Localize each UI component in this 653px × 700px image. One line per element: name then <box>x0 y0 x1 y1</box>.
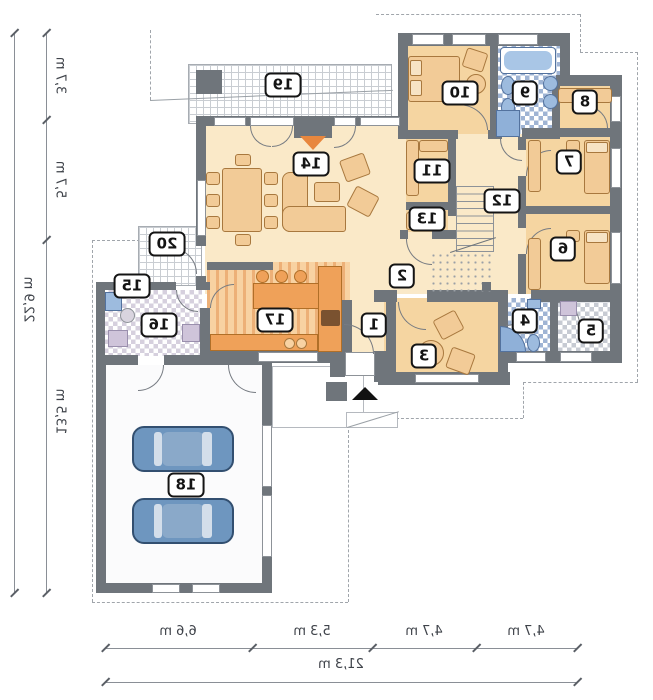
car-windshield <box>202 504 212 538</box>
dash-left-stub <box>92 240 140 241</box>
room-label-14: 14 <box>293 152 330 177</box>
room-label-15: 15 <box>114 274 151 299</box>
chair <box>235 154 251 166</box>
room-label-20: 20 <box>149 232 186 257</box>
wall-76-divider <box>526 206 612 214</box>
sink <box>543 76 558 91</box>
window-kitchen <box>258 352 318 362</box>
wall-45-divider <box>550 298 558 351</box>
room-label-9: 9 <box>512 81 538 106</box>
car-windshield <box>202 432 212 466</box>
chair <box>206 194 220 207</box>
window-garage-1 <box>152 584 180 593</box>
chair <box>264 172 278 185</box>
dim-bottom-total-line <box>105 682 577 683</box>
dash-topright-h <box>580 52 638 53</box>
wardrobe <box>528 238 541 290</box>
wall-block-right-a <box>200 282 210 290</box>
window-room5 <box>560 352 592 362</box>
dim-label-left-total: 22,9 m <box>21 272 36 328</box>
wall-garage-bottom <box>96 583 272 593</box>
window-bath9 <box>498 34 538 45</box>
window-bed10-2 <box>452 34 486 45</box>
dim-label-bottom-0: 6,6 m <box>150 624 206 639</box>
window-living-2 <box>360 117 400 126</box>
cabinet <box>108 330 128 347</box>
chair <box>264 194 278 207</box>
living-door-gap <box>334 117 356 126</box>
garage-door-2 <box>262 495 272 557</box>
dash-driveway-v <box>348 430 349 602</box>
wall-garage-left <box>96 365 106 593</box>
room-label-10: 10 <box>442 81 479 106</box>
wall-block-left <box>96 282 105 364</box>
car <box>132 426 234 472</box>
pillow <box>586 232 608 243</box>
bar-stool <box>275 270 288 283</box>
kitchen-sink <box>284 338 295 349</box>
room-label-12: 12 <box>484 189 521 214</box>
terrace-pillar <box>196 70 222 94</box>
room-label-6: 6 <box>550 237 576 262</box>
dash-terrace-v <box>150 30 151 100</box>
window-room7 <box>611 148 621 188</box>
dash-left-v <box>92 240 93 602</box>
chair <box>235 234 251 246</box>
dim-label-left-0: 3,7 m <box>53 48 68 104</box>
wall-8-top <box>556 75 616 86</box>
room-label-18: 18 <box>168 473 205 498</box>
window-office <box>415 374 479 383</box>
coffee-table <box>314 182 340 202</box>
dim-label-bottom-2: 4,7 m <box>396 624 452 639</box>
room-label-8: 8 <box>572 90 598 115</box>
dim-label-bottom-1: 5,3 m <box>284 624 340 639</box>
fireplace-body <box>294 116 332 138</box>
window-garage-2 <box>192 584 220 593</box>
terrace-door-gap <box>250 117 294 126</box>
dim-label-left-2: 13,5 m <box>53 384 68 440</box>
kitchen-counter-right <box>318 266 342 352</box>
room-label-1: 1 <box>361 313 387 338</box>
wall-13-bottom-a <box>400 230 408 239</box>
room-label-3: 3 <box>411 344 437 369</box>
dim-label-bottom-3: 4,7 m <box>498 624 554 639</box>
car-rear-window <box>154 432 162 466</box>
kitchen-island <box>253 283 321 309</box>
dim-label-bottom-total: 21,3 m <box>313 657 369 672</box>
room-label-17: 17 <box>257 308 294 333</box>
room-label-19: 19 <box>265 73 302 98</box>
window-living-left <box>197 180 206 236</box>
floor-plan: 1 2 3 4 5 6 7 8 9 10 11 12 13 14 15 16 1… <box>0 0 653 700</box>
dim-left-total-line <box>14 33 15 593</box>
dim-bottom-seg-line <box>105 648 577 649</box>
shower <box>496 110 520 137</box>
wall-7-top <box>522 128 612 137</box>
room-label-4: 4 <box>512 309 538 334</box>
window-room6 <box>611 232 621 284</box>
room-label-13: 13 <box>409 207 446 232</box>
window-bed10-1 <box>412 34 444 45</box>
room-label-11: 11 <box>414 159 451 184</box>
sink <box>543 94 558 109</box>
cabinet <box>182 324 200 342</box>
dim-label-left-1: 5,7 m <box>53 152 68 208</box>
kitchen-sink <box>296 338 307 349</box>
entry-door-gap <box>345 352 375 376</box>
toilet <box>527 334 540 352</box>
wall-vest-corner <box>374 351 396 382</box>
chair <box>206 216 220 229</box>
window-bath4 <box>516 352 546 362</box>
fireplace-hearth <box>300 136 326 150</box>
bathtub-inner <box>504 51 552 70</box>
porch-column <box>326 382 347 401</box>
car-roof <box>162 504 204 538</box>
pillow <box>410 60 422 76</box>
dash-top <box>376 14 580 15</box>
dining-table <box>222 168 262 232</box>
wall-block-garage-b <box>164 355 272 365</box>
dash-right-step-h <box>523 382 638 383</box>
car <box>132 498 234 544</box>
dash-topright-v <box>580 14 581 52</box>
chair <box>264 216 278 229</box>
room-label-2: 2 <box>389 264 415 289</box>
room-label-7: 7 <box>556 150 582 175</box>
sink <box>527 299 541 309</box>
boiler <box>560 301 577 316</box>
entrance-arrow-icon <box>352 387 378 400</box>
utility-sink <box>120 308 135 323</box>
room-label-5: 5 <box>578 319 604 344</box>
window-living-1 <box>214 117 246 126</box>
bar-stool <box>256 270 269 283</box>
car-rear-window <box>154 504 162 538</box>
wall-block-right-b <box>200 308 210 356</box>
bar-stool <box>294 270 307 283</box>
wardrobe <box>528 140 541 192</box>
wall-block-garage-a <box>96 355 138 365</box>
closet-room11-top <box>419 140 448 152</box>
room-label-16: 16 <box>141 313 178 338</box>
stairs-post <box>482 282 491 291</box>
garage-door-1 <box>262 425 272 487</box>
wall-corr-right-c <box>518 254 526 294</box>
dash-right-step-v <box>523 382 524 418</box>
dash-bottom-h <box>92 602 348 603</box>
pillow <box>586 142 608 153</box>
pillow <box>410 80 422 96</box>
chair <box>206 172 220 185</box>
car-roof <box>162 432 204 466</box>
sofa-corner-horizontal <box>282 206 346 232</box>
wall-kitchen-topstub <box>207 262 273 270</box>
window-room8 <box>611 96 621 122</box>
stove <box>321 310 340 326</box>
dash-right-v <box>637 52 638 382</box>
